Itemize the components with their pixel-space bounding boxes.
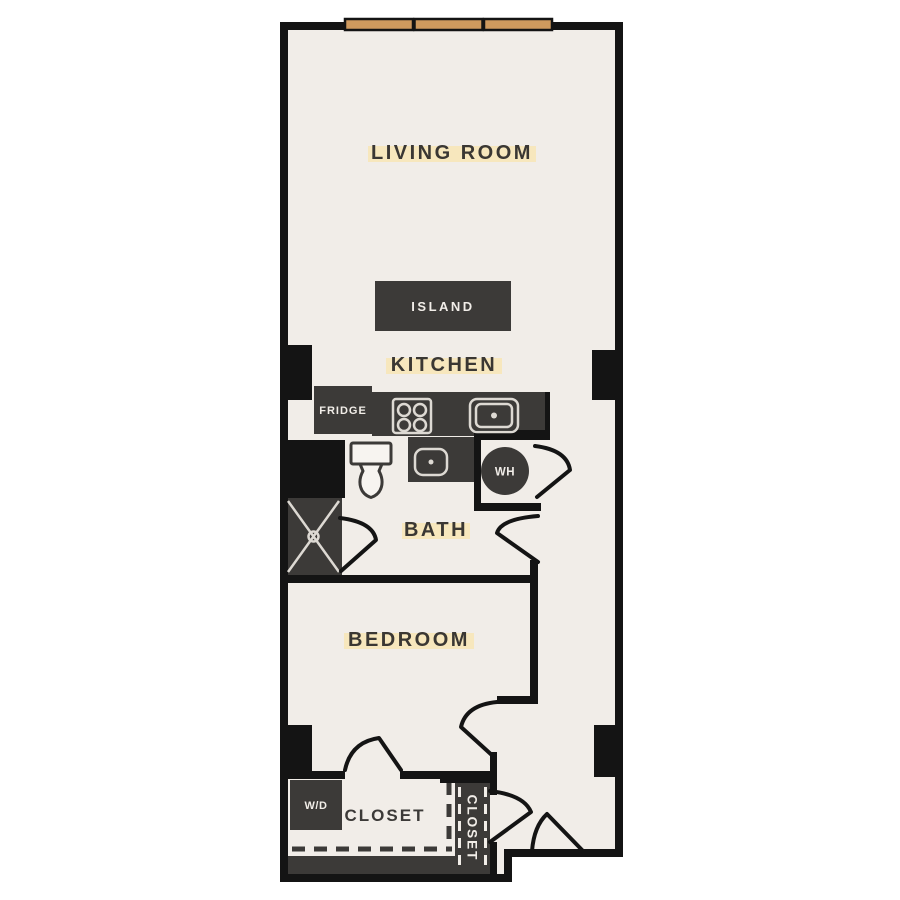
floor-plan-svg: LIVING ROOM KITCHEN BATH BEDROOM ISLAND … <box>0 0 900 900</box>
living-room-label: LIVING ROOM <box>371 142 533 164</box>
wall-bedroom-east <box>530 575 538 698</box>
wall-entry-closet-top <box>440 775 497 783</box>
bath-label: BATH <box>404 519 468 541</box>
wall-counter-end <box>545 392 550 436</box>
window-icon <box>484 19 552 30</box>
wall-bedroom-door-header <box>497 696 538 704</box>
closet-shelf <box>288 856 470 874</box>
pillar-bottom-left <box>280 725 312 772</box>
wall-bottom-left <box>280 874 512 882</box>
island-label: ISLAND <box>411 299 474 314</box>
bedroom-label: BEDROOM <box>348 629 470 651</box>
pillar-kitchen-right <box>592 350 623 400</box>
washer-dryer-label: W/D <box>305 800 328 812</box>
pillar-bath-left <box>280 440 345 498</box>
water-heater-label: WH <box>495 467 515 479</box>
closet-label: CLOSET <box>345 806 426 825</box>
floor-plan: LIVING ROOM KITCHEN BATH BEDROOM ISLAND … <box>0 0 900 900</box>
entry-closet-label: CLOSET <box>465 795 480 862</box>
kitchen-label: KITCHEN <box>391 354 497 376</box>
pillar-bottom-right <box>594 725 623 777</box>
wall-bath-south <box>288 575 538 583</box>
wall-bottom-step <box>504 849 512 882</box>
wall-hall-west-lower <box>490 842 497 874</box>
pillar-kitchen-left <box>280 345 312 400</box>
fridge-label: FRIDGE <box>319 405 367 417</box>
window-icon <box>345 19 413 30</box>
window-icon <box>415 19 483 30</box>
wall-bottom-right <box>504 849 623 857</box>
wall-wh-bottom <box>474 503 541 511</box>
wall-bedroom-south-left <box>288 771 345 779</box>
wall-wh-left <box>474 433 481 511</box>
window-strip <box>345 19 552 30</box>
